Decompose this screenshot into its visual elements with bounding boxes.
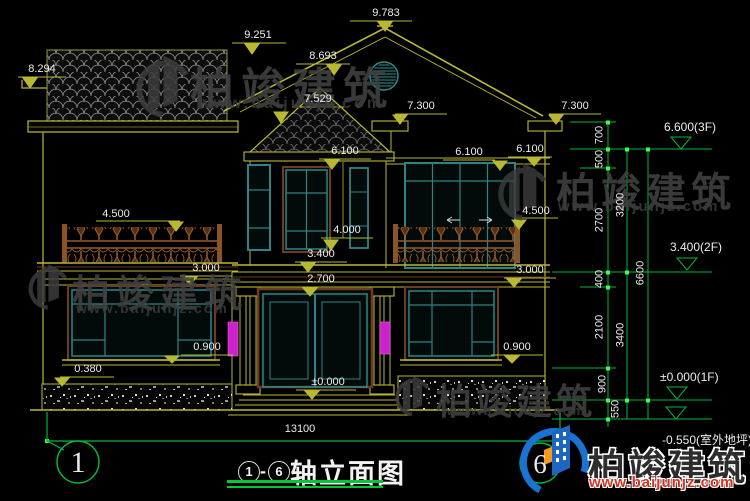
watermark-site-left: www.baijunjz.com	[76, 300, 229, 316]
entrance	[228, 287, 410, 415]
chain-3400: 3400	[616, 323, 627, 347]
title-underline-1	[227, 480, 383, 483]
dim-2f-floor: 3.400	[297, 249, 345, 260]
dim-left-railing-top: 4.500	[92, 209, 140, 220]
wall-lamp-right	[380, 322, 390, 354]
entrance-steps	[228, 395, 410, 415]
chain-3200: 3200	[616, 193, 627, 217]
dim-bay-sill: 4.000	[323, 225, 371, 236]
dim-eave-right-7300: 7.300	[551, 101, 599, 112]
dim-left-eave: 8.294	[18, 64, 66, 75]
dim-door-head: 6.100	[445, 147, 493, 158]
dim-door-top: 2.700	[297, 274, 345, 285]
dim-ground-zero: ±0.000	[298, 377, 358, 388]
dim-ridge-height: 9.783	[362, 8, 410, 19]
dim-gable-mid: 8.693	[299, 51, 347, 62]
watermark-site-bottom: www.baijunjz.com	[442, 403, 586, 418]
dim-left-sill: 0.900	[183, 342, 231, 353]
chain-900: 900	[598, 375, 609, 393]
dim-eave-left-7300: 7.300	[397, 101, 445, 112]
title-underline-2	[227, 486, 383, 488]
dim-right-lintel: 3.000	[506, 265, 554, 276]
level-1f: ±0.000(1F)	[660, 371, 719, 383]
title-text: 轴立面图	[290, 459, 406, 489]
axis-bubble-1: 1	[64, 446, 92, 480]
title-dash: -	[260, 461, 268, 481]
dim-total-width: 13100	[272, 424, 328, 435]
entrance-door	[258, 289, 372, 387]
axis-bubble-6: 6	[531, 449, 549, 480]
chain-500: 500	[595, 150, 606, 168]
watermark-site-top: www.baijunjz.com	[198, 95, 384, 113]
elevation-drawing-canvas: 柏竣建筑 www.baijunjz.com 柏竣建筑 www.baijunjz.…	[0, 0, 750, 501]
dim-bay-eave: 6.100	[321, 146, 369, 157]
chain-700: 700	[595, 126, 606, 144]
chain-2700: 2700	[595, 208, 606, 232]
chain-2100: 2100	[595, 315, 606, 339]
level-3f: 6.600(3F)	[664, 121, 716, 133]
dim-right-railing-top: 4.500	[512, 206, 560, 217]
dim-left-lintel: 3.000	[182, 263, 230, 274]
chain-550: 550	[611, 400, 622, 418]
chain-400: 400	[595, 270, 606, 288]
second-floor-windows	[248, 165, 368, 252]
chain-6600: 6600	[636, 261, 647, 285]
watermark-site-right: www.baijunjz.com	[558, 198, 719, 215]
level-2f: 3.400(2F)	[670, 241, 722, 253]
dim-plinth-top: 0.380	[64, 364, 112, 375]
dim-right-sill: 0.900	[493, 342, 541, 353]
dim-tower-roof: 7.529	[294, 94, 342, 105]
dim-left-roof-top: 9.251	[234, 30, 282, 41]
brand-logo-site: www.baijunjz.com	[589, 474, 734, 491]
first-floor-right-window	[400, 287, 502, 365]
dim-right-band: 6.100	[508, 144, 552, 155]
